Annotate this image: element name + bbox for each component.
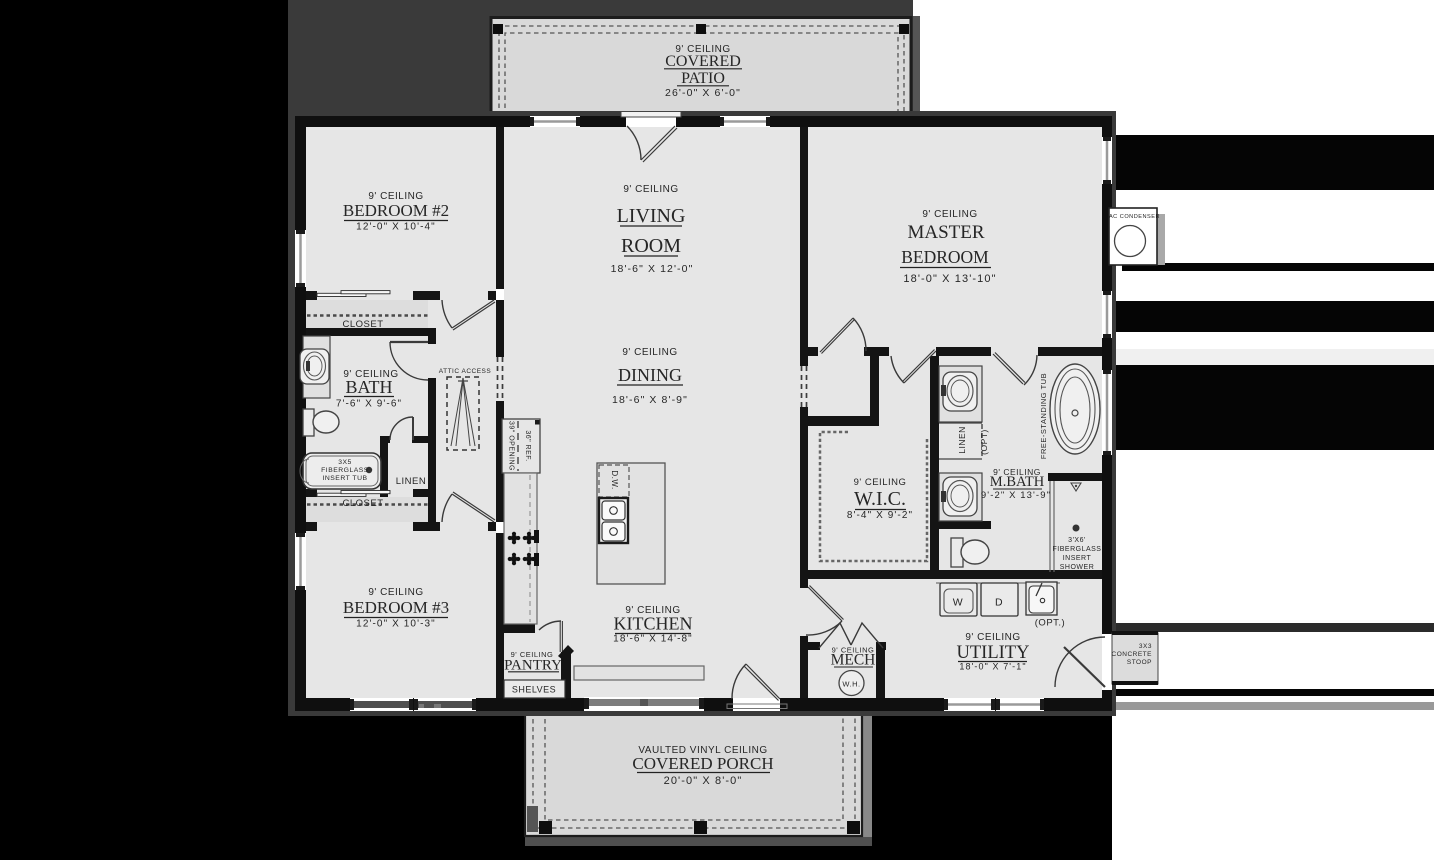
svg-text:W.H.: W.H. bbox=[842, 680, 860, 689]
svg-text:UTILITY: UTILITY bbox=[957, 643, 1030, 663]
svg-text:AC CONDENSER: AC CONDENSER bbox=[1109, 214, 1160, 220]
svg-text:20'-0" X 8'-0": 20'-0" X 8'-0" bbox=[664, 775, 743, 787]
svg-text:M.BATH: M.BATH bbox=[990, 474, 1045, 490]
svg-text:BEDROOM #2: BEDROOM #2 bbox=[343, 201, 449, 220]
svg-text:9' CEILING: 9' CEILING bbox=[965, 632, 1020, 643]
svg-text:ROOM: ROOM bbox=[621, 235, 681, 257]
svg-text:CLOSET: CLOSET bbox=[342, 319, 383, 330]
svg-text:9' CEILING: 9' CEILING bbox=[368, 587, 423, 598]
svg-text:18'-6" X 8'-9": 18'-6" X 8'-9" bbox=[612, 394, 688, 406]
svg-text:9'-2" X 13'-9": 9'-2" X 13'-9" bbox=[981, 490, 1051, 501]
svg-text:FIBERGLASS: FIBERGLASS bbox=[321, 467, 369, 474]
svg-text:18'-0" X 7'-1": 18'-0" X 7'-1" bbox=[959, 662, 1026, 672]
svg-text:STOOP: STOOP bbox=[1127, 659, 1152, 666]
svg-text:26'-0" X 6'-0": 26'-0" X 6'-0" bbox=[665, 87, 741, 99]
svg-text:18'-6" X 12'-0": 18'-6" X 12'-0" bbox=[611, 263, 694, 275]
svg-text:ATTIC ACCESS: ATTIC ACCESS bbox=[439, 368, 492, 375]
svg-text:9' CEILING: 9' CEILING bbox=[623, 184, 678, 195]
svg-text:7'-6" X 9'-6": 7'-6" X 9'-6" bbox=[336, 399, 402, 410]
svg-text:COVERED: COVERED bbox=[665, 53, 741, 70]
svg-text:MECH: MECH bbox=[831, 652, 876, 669]
svg-text:3'X6': 3'X6' bbox=[1068, 537, 1086, 544]
svg-text:12'-0" X 10'-4": 12'-0" X 10'-4" bbox=[356, 222, 436, 233]
svg-text:18'-6" X 14'-8": 18'-6" X 14'-8" bbox=[613, 634, 693, 645]
svg-text:8'-4" X 9'-2": 8'-4" X 9'-2" bbox=[847, 510, 913, 521]
svg-text:9' CEILING: 9' CEILING bbox=[922, 209, 977, 220]
svg-text:LINEN: LINEN bbox=[396, 476, 426, 487]
svg-text:SHOWER: SHOWER bbox=[1060, 564, 1095, 571]
svg-text:9' CEILING: 9' CEILING bbox=[622, 347, 677, 358]
svg-text:9' CEILING: 9' CEILING bbox=[854, 477, 907, 488]
svg-text:COVERED PORCH: COVERED PORCH bbox=[632, 754, 773, 773]
svg-text:DINING: DINING bbox=[618, 365, 682, 385]
svg-text:BEDROOM #3: BEDROOM #3 bbox=[343, 598, 449, 617]
svg-text:CLOSET: CLOSET bbox=[342, 498, 383, 509]
svg-text:KITCHEN: KITCHEN bbox=[614, 614, 693, 634]
svg-text:INSERT: INSERT bbox=[1063, 555, 1092, 562]
svg-text:W.I.C.: W.I.C. bbox=[854, 488, 906, 510]
svg-text:(OPT.): (OPT.) bbox=[1035, 618, 1065, 629]
svg-text:39" OPENING: 39" OPENING bbox=[508, 421, 515, 471]
svg-text:3X3: 3X3 bbox=[1139, 643, 1152, 650]
svg-text:BEDROOM: BEDROOM bbox=[901, 247, 989, 267]
svg-text:SHELVES: SHELVES bbox=[512, 685, 556, 695]
svg-text:LINEN: LINEN bbox=[957, 426, 967, 454]
svg-text:INSERT TUB: INSERT TUB bbox=[322, 475, 367, 482]
svg-text:FREE-STANDING TUB: FREE-STANDING TUB bbox=[1039, 373, 1048, 459]
svg-text:BATH: BATH bbox=[345, 377, 392, 397]
svg-text:(OPT): (OPT) bbox=[979, 429, 989, 455]
svg-text:FIBERGLASS: FIBERGLASS bbox=[1053, 546, 1102, 553]
svg-text:CONCRETE: CONCRETE bbox=[1112, 651, 1153, 658]
svg-text:D.W.: D.W. bbox=[610, 470, 619, 489]
svg-text:W: W bbox=[953, 597, 963, 609]
svg-text:3X5: 3X5 bbox=[338, 459, 352, 466]
svg-text:PANTRY: PANTRY bbox=[504, 658, 562, 674]
svg-text:12'-0" X 10'-3": 12'-0" X 10'-3" bbox=[356, 619, 436, 630]
svg-text:18'-0" X 13'-10": 18'-0" X 13'-10" bbox=[903, 273, 996, 285]
svg-text:36" REF.: 36" REF. bbox=[524, 430, 531, 461]
svg-text:MASTER: MASTER bbox=[907, 222, 984, 243]
svg-text:D: D bbox=[995, 597, 1003, 609]
svg-text:LIVING: LIVING bbox=[617, 205, 686, 227]
svg-text:PATIO: PATIO bbox=[681, 70, 725, 87]
